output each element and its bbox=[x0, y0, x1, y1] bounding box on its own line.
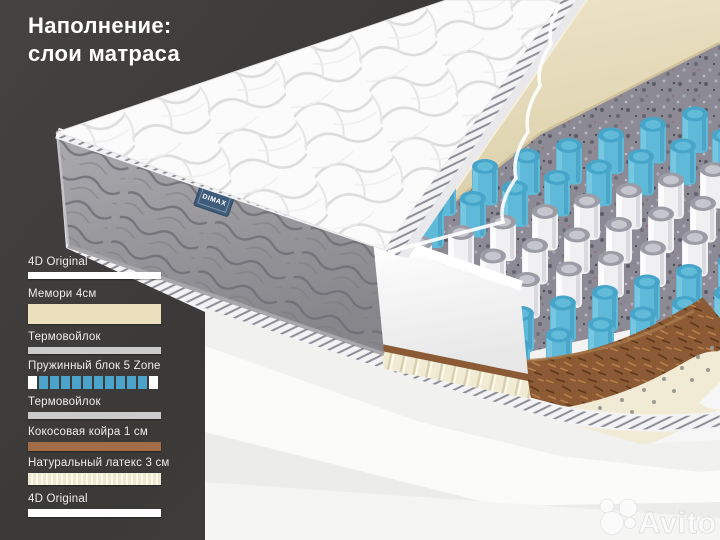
mattress-illustration: DIMAX Avito bbox=[0, 0, 720, 540]
title-line-2: слои матраса bbox=[28, 40, 180, 68]
page-title: Наполнение: слои матраса bbox=[28, 12, 180, 68]
svg-text:Avito: Avito bbox=[638, 505, 717, 540]
title-line-1: Наполнение: bbox=[28, 12, 180, 40]
product-infographic: DIMAX Avito Наполнение: слои матраса 4D … bbox=[0, 0, 720, 540]
